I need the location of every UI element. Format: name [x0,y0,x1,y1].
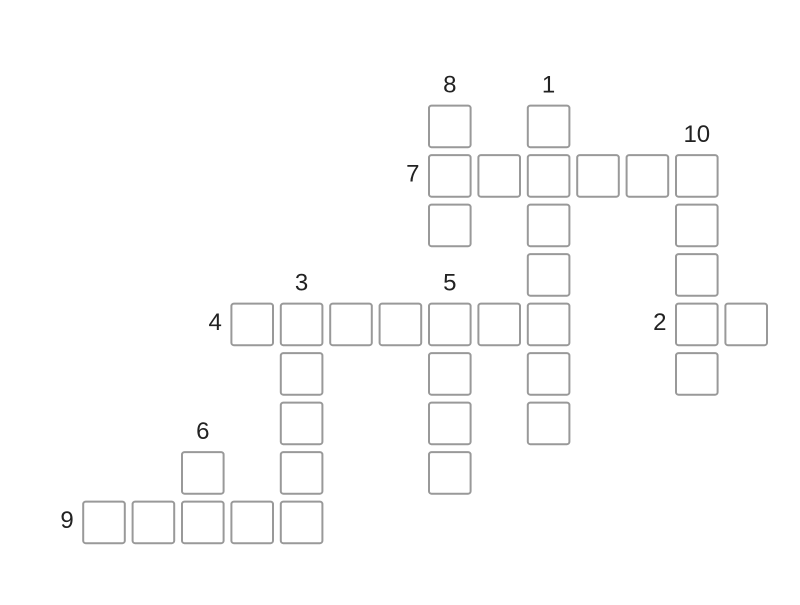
svg-text:7: 7 [406,161,419,188]
svg-text:3: 3 [295,270,308,297]
svg-text:9: 9 [60,507,73,534]
svg-text:5: 5 [443,270,456,297]
svg-text:4: 4 [209,309,222,336]
svg-text:10: 10 [683,121,710,148]
svg-text:6: 6 [196,418,209,445]
svg-text:2: 2 [653,309,666,336]
svg-text:1: 1 [542,72,555,99]
svg-text:8: 8 [443,72,456,99]
